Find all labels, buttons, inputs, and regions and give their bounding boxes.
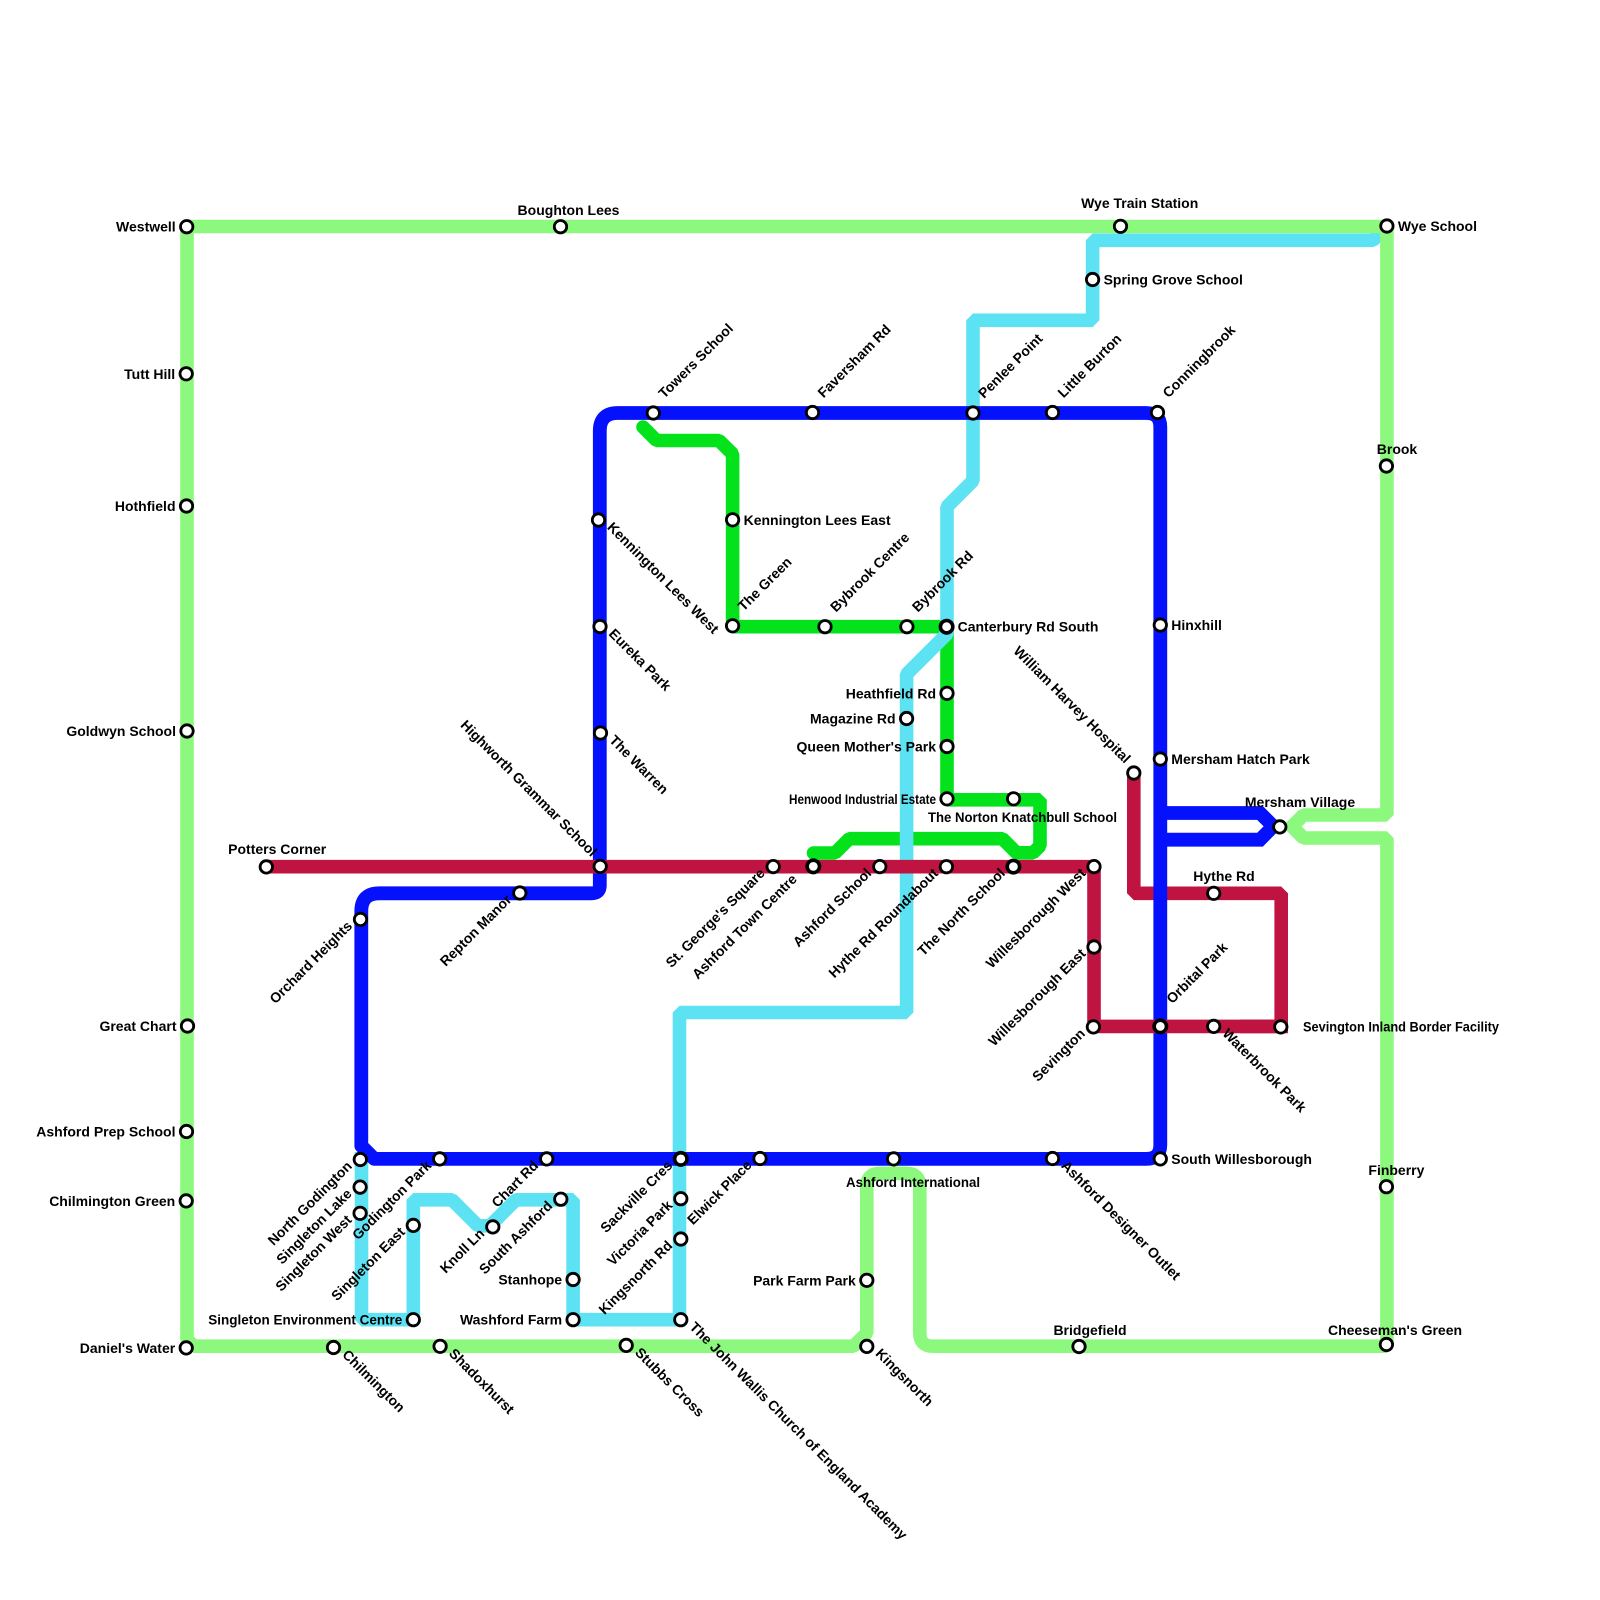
- svg-text:Finberry: Finberry: [1368, 1162, 1424, 1178]
- svg-text:Daniel's Water: Daniel's Water: [80, 1340, 176, 1356]
- svg-text:Sevington Inland Border Facili: Sevington Inland Border Facility: [1303, 1018, 1499, 1034]
- svg-text:Brook: Brook: [1377, 441, 1418, 457]
- svg-text:Goldwyn School: Goldwyn School: [66, 723, 176, 739]
- svg-text:Henwood Industrial Estate: Henwood Industrial Estate: [789, 791, 936, 807]
- svg-text:Park Farm Park: Park Farm Park: [753, 1272, 856, 1288]
- svg-text:Hothfield: Hothfield: [115, 498, 176, 514]
- svg-text:Singleton Environment Centre: Singleton Environment Centre: [208, 1312, 402, 1328]
- svg-text:Wye School: Wye School: [1398, 218, 1477, 234]
- svg-text:Westwell: Westwell: [116, 219, 176, 235]
- svg-text:Wye Train Station: Wye Train Station: [1081, 195, 1198, 211]
- svg-text:Kennington Lees East: Kennington Lees East: [744, 512, 891, 528]
- svg-text:Canterbury Rd South: Canterbury Rd South: [958, 619, 1099, 635]
- svg-text:Heathfield Rd: Heathfield Rd: [846, 685, 936, 701]
- svg-text:Ashford Prep School: Ashford Prep School: [36, 1124, 175, 1140]
- svg-text:Cheeseman's Green: Cheeseman's Green: [1328, 1322, 1462, 1338]
- svg-text:Queen Mother's Park: Queen Mother's Park: [797, 739, 937, 755]
- svg-text:Hinxhill: Hinxhill: [1171, 617, 1222, 633]
- svg-text:The Norton Knatchbull School: The Norton Knatchbull School: [928, 809, 1117, 825]
- svg-text:Boughton Lees: Boughton Lees: [518, 202, 620, 218]
- svg-text:Mersham Village: Mersham Village: [1245, 794, 1355, 810]
- svg-text:Ashford International: Ashford International: [846, 1174, 980, 1190]
- svg-text:Great Chart: Great Chart: [99, 1018, 176, 1034]
- svg-text:Washford Farm: Washford Farm: [460, 1312, 562, 1328]
- svg-text:Tutt Hill: Tutt Hill: [124, 366, 175, 382]
- svg-text:Potters Corner: Potters Corner: [228, 841, 327, 857]
- svg-text:Mersham Hatch Park: Mersham Hatch Park: [1171, 751, 1310, 767]
- svg-text:Chilmington Green: Chilmington Green: [49, 1193, 175, 1209]
- svg-text:Magazine Rd: Magazine Rd: [810, 711, 896, 727]
- svg-text:Bridgefield: Bridgefield: [1053, 1322, 1126, 1338]
- svg-text:South Willesborough: South Willesborough: [1171, 1151, 1312, 1167]
- svg-text:Spring Grove School: Spring Grove School: [1104, 272, 1243, 288]
- svg-text:Stanhope: Stanhope: [498, 1272, 562, 1288]
- svg-text:Hythe Rd: Hythe Rd: [1193, 868, 1254, 884]
